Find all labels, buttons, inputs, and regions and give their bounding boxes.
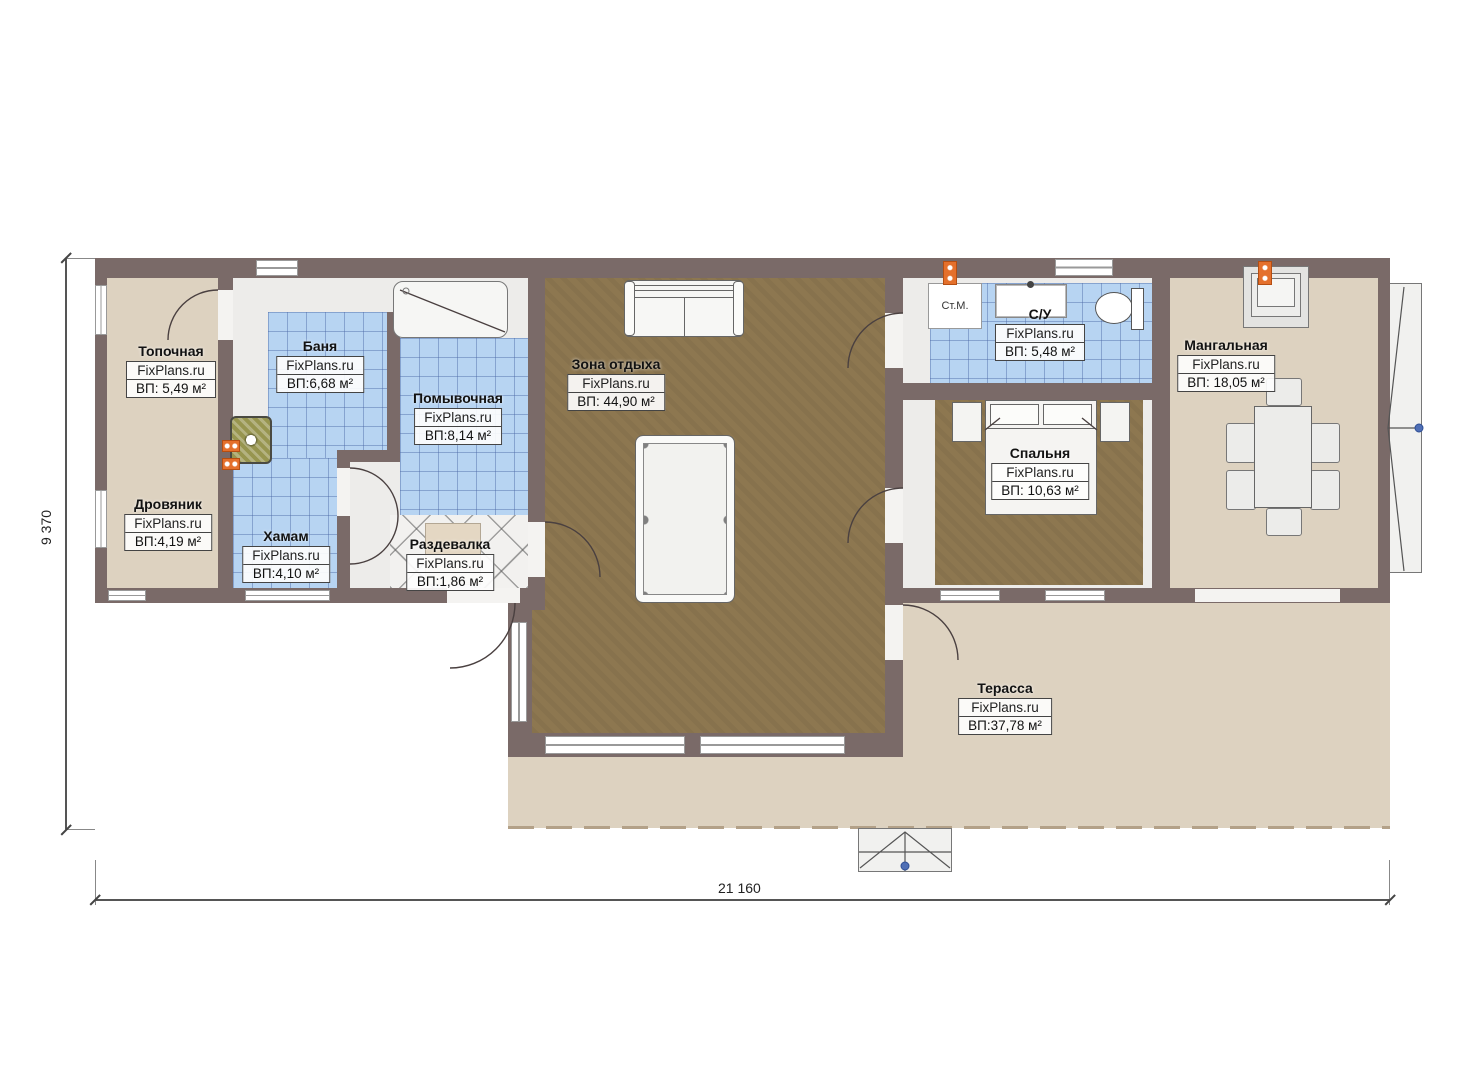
pillow bbox=[1043, 404, 1092, 425]
watermark: FixPlans.ru bbox=[127, 362, 215, 380]
watermark: FixPlans.ru bbox=[277, 357, 363, 375]
nightstand bbox=[1100, 402, 1130, 442]
wall-segment bbox=[885, 368, 903, 488]
dining-table bbox=[1254, 406, 1312, 508]
pillow bbox=[990, 404, 1039, 425]
extension-line bbox=[65, 829, 95, 830]
room-label-razdevalka: Раздевалка FixPlans.ru ВП:1,86 м² bbox=[406, 536, 494, 591]
room-area: ВП:4,19 м² bbox=[125, 533, 211, 550]
room-name: Баня bbox=[276, 338, 364, 354]
bbq-mangal bbox=[1243, 266, 1309, 328]
window-bay bbox=[700, 736, 845, 754]
watermark: FixPlans.ru bbox=[992, 464, 1088, 482]
watermark: FixPlans.ru bbox=[1178, 356, 1274, 374]
wall-segment bbox=[218, 278, 233, 290]
sofa-back bbox=[626, 281, 742, 298]
floor-plan-canvas: Ст.М. bbox=[0, 0, 1474, 1080]
chair bbox=[1226, 423, 1256, 463]
door-opening-wc bbox=[885, 313, 903, 368]
opening-mangal-terrace bbox=[1195, 589, 1340, 602]
watermark: FixPlans.ru bbox=[243, 547, 329, 565]
room-area: ВП: 10,63 м² bbox=[992, 482, 1088, 499]
dimension-height: 9 370 bbox=[38, 510, 54, 545]
watermark: FixPlans.ru bbox=[415, 409, 501, 427]
room-label-zona-otdyha: Зона отдыха FixPlans.ru ВП: 44,90 м² bbox=[567, 356, 665, 411]
wall-segment bbox=[885, 278, 903, 313]
watermark: FixPlans.ru bbox=[407, 555, 493, 573]
faucet-icon bbox=[1027, 281, 1034, 288]
dimension-width: 21 160 bbox=[718, 880, 761, 896]
watermark: FixPlans.ru bbox=[959, 699, 1051, 717]
watermark: FixPlans.ru bbox=[996, 325, 1084, 343]
vent-marker bbox=[943, 261, 957, 285]
watermark: FixPlans.ru bbox=[568, 375, 664, 393]
room-name: Дровяник bbox=[124, 496, 212, 512]
chair bbox=[1310, 470, 1340, 510]
room-name: Помывочная bbox=[413, 390, 503, 406]
room-name: Топочная bbox=[126, 343, 216, 359]
window bbox=[95, 490, 107, 548]
wall-segment bbox=[1152, 278, 1170, 588]
room-area: ВП: 5,48 м² bbox=[996, 343, 1084, 360]
window bbox=[1055, 259, 1113, 276]
room-name: Хамам bbox=[242, 528, 330, 544]
window bbox=[256, 260, 298, 276]
nightstand bbox=[952, 402, 982, 442]
room-name: Зона отдыха bbox=[567, 356, 665, 372]
room-label-terrasa: Терасса FixPlans.ru ВП:37,78 м² bbox=[958, 680, 1052, 735]
bathtub bbox=[393, 281, 508, 338]
room-name: Терасса bbox=[958, 680, 1052, 696]
window bbox=[940, 590, 1000, 601]
toilet-bowl bbox=[1095, 292, 1133, 324]
room-area: ВП: 44,90 м² bbox=[568, 393, 664, 410]
extension-line bbox=[65, 258, 95, 259]
dimension-line-vertical bbox=[65, 258, 67, 830]
door-opening-hamam bbox=[337, 468, 350, 516]
room-label-spalnya: Спальня FixPlans.ru ВП: 10,63 м² bbox=[991, 445, 1089, 500]
door-opening-boiler bbox=[218, 290, 233, 340]
window bbox=[108, 590, 146, 601]
window-bay bbox=[545, 736, 685, 754]
wall-segment bbox=[528, 278, 545, 522]
window bbox=[245, 590, 330, 601]
room-name: Мангальная bbox=[1177, 337, 1275, 353]
room-area: ВП:8,14 м² bbox=[415, 427, 501, 444]
watermark: FixPlans.ru bbox=[125, 515, 211, 533]
wall-segment bbox=[885, 543, 903, 605]
vent-marker bbox=[222, 458, 240, 470]
room-area: ВП: 18,05 м² bbox=[1178, 374, 1274, 391]
room-label-banya: Баня FixPlans.ru ВП:6,68 м² bbox=[276, 338, 364, 393]
washing-machine-label: Ст.М. bbox=[941, 300, 968, 312]
room-area: ВП:6,68 м² bbox=[277, 375, 363, 392]
room-label-hamam: Хамам FixPlans.ru ВП:4,10 м² bbox=[242, 528, 330, 583]
room-name: Спальня bbox=[991, 445, 1089, 461]
room-area: ВП:1,86 м² bbox=[407, 573, 493, 590]
billiard-table bbox=[635, 435, 735, 603]
room-label-su: С/У FixPlans.ru ВП: 5,48 м² bbox=[995, 306, 1085, 361]
window bbox=[1045, 590, 1105, 601]
room-area: ВП: 5,49 м² bbox=[127, 380, 215, 397]
room-label-pomyvochnaya: Помывочная FixPlans.ru ВП:8,14 м² bbox=[413, 390, 503, 445]
toilet-tank bbox=[1131, 288, 1144, 330]
vent-marker bbox=[1258, 261, 1272, 285]
wall-segment bbox=[337, 516, 350, 588]
room-label-mangalnaya: Мангальная FixPlans.ru ВП: 18,05 м² bbox=[1177, 337, 1275, 392]
chair bbox=[1310, 423, 1340, 463]
steps-side bbox=[1386, 283, 1422, 573]
floor-lounge-bay bbox=[532, 588, 885, 733]
dimension-line-horizontal bbox=[95, 899, 1390, 901]
vent-marker bbox=[222, 440, 240, 452]
room-name: Раздевалка bbox=[406, 536, 494, 552]
wall-segment bbox=[337, 450, 350, 468]
door-opening-razdevalka bbox=[528, 522, 545, 577]
chair bbox=[1266, 508, 1302, 536]
door-opening-bedroom bbox=[885, 488, 903, 543]
room-name: С/У bbox=[995, 306, 1085, 322]
washing-machine: Ст.М. bbox=[928, 283, 982, 329]
room-label-drovyanik: Дровяник FixPlans.ru ВП:4,19 м² bbox=[124, 496, 212, 551]
chair bbox=[1226, 470, 1256, 510]
room-area: ВП:37,78 м² bbox=[959, 717, 1051, 734]
steps-front bbox=[858, 828, 952, 872]
sofa bbox=[625, 280, 743, 337]
wall-right bbox=[1378, 258, 1390, 603]
room-area: ВП:4,10 м² bbox=[243, 565, 329, 582]
wall-segment bbox=[903, 383, 1152, 400]
window-bay-left bbox=[511, 622, 527, 722]
door-opening-terrace bbox=[885, 605, 903, 660]
wall-segment bbox=[218, 340, 233, 603]
room-label-topochnaya: Топочная FixPlans.ru ВП: 5,49 м² bbox=[126, 343, 216, 398]
window bbox=[95, 285, 107, 335]
